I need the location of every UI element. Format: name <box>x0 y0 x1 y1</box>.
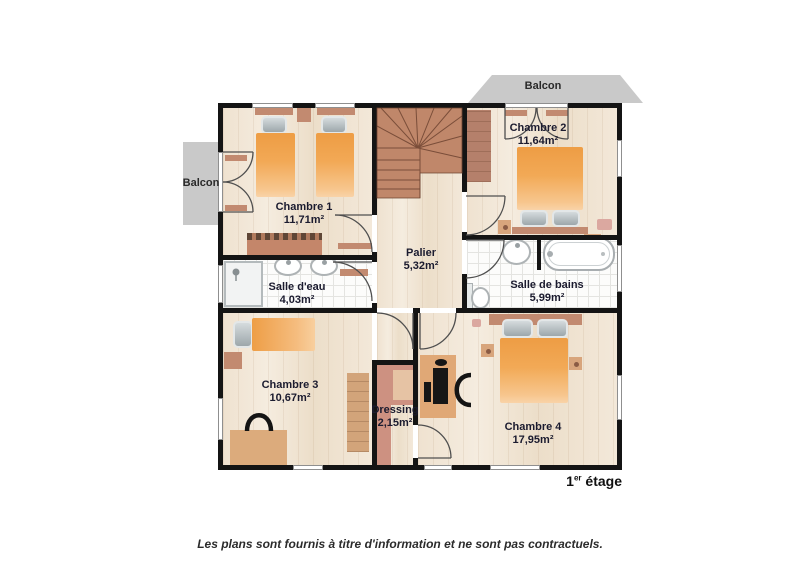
label-chambre-3: Chambre 310,67m² <box>262 379 319 405</box>
disclaimer-caption: Les plans sont fournis à titre d'informa… <box>0 537 800 551</box>
label-chambre-1: Chambre 111,71m² <box>276 201 333 227</box>
bathtub-faucet-icon <box>547 251 605 257</box>
plan-linework <box>0 0 800 565</box>
floor-title: 1er étage <box>566 473 622 489</box>
label-chambre-2: Chambre 211,64m² <box>510 122 567 148</box>
label-salle-de-bains: Salle de bains5,99m² <box>510 279 583 305</box>
label-dressing: Dressing2,15m² <box>371 404 418 430</box>
shower-head-icon <box>233 269 240 282</box>
label-balcony-top: Balcon <box>525 80 562 92</box>
label-balcony-left: Balcon <box>183 177 220 189</box>
label-chambre-4: Chambre 417,95m² <box>505 421 562 447</box>
label-palier: Palier5,32m² <box>404 247 439 273</box>
label-salle-deau: Salle d'eau4,03m² <box>268 281 325 307</box>
staircase-icon <box>377 108 462 198</box>
floor-plan: Chambre 111,71m² Chambre 211,64m² Salle … <box>0 0 800 565</box>
